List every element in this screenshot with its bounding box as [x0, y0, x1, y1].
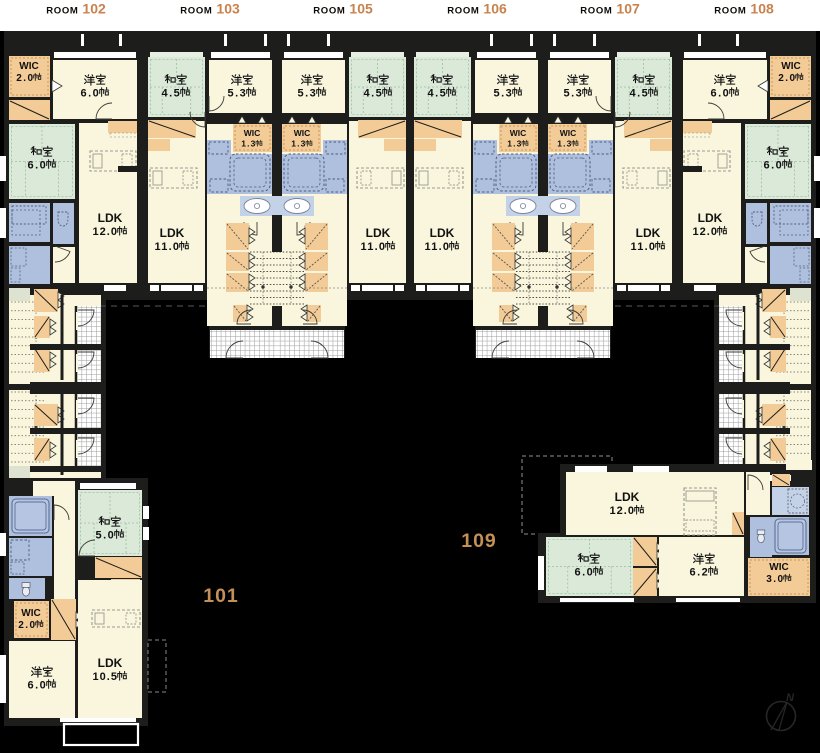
svg-text:WIC: WIC — [244, 128, 261, 138]
svg-text:WIC: WIC — [21, 608, 40, 619]
svg-text:1.3: 1.3 — [557, 139, 571, 149]
svg-text:5.0: 5.0 — [96, 530, 114, 542]
svg-text:109: 109 — [461, 530, 497, 552]
svg-text:12.0: 12.0 — [693, 226, 718, 238]
svg-text:1.3: 1.3 — [291, 139, 305, 149]
svg-text:5.3: 5.3 — [228, 88, 246, 100]
svg-text:2.0: 2.0 — [778, 73, 795, 84]
svg-text:5.3: 5.3 — [564, 88, 582, 100]
svg-text:6.0: 6.0 — [764, 160, 782, 172]
svg-text:1.3: 1.3 — [241, 139, 255, 149]
svg-text:LDK: LDK — [698, 211, 723, 225]
svg-text:11.0: 11.0 — [155, 241, 180, 253]
svg-text:12.0: 12.0 — [93, 226, 118, 238]
svg-text:WIC: WIC — [769, 562, 788, 573]
svg-text:6.0: 6.0 — [28, 160, 46, 172]
svg-text:101: 101 — [203, 585, 239, 607]
svg-text:N: N — [786, 692, 795, 704]
svg-text:6.0: 6.0 — [81, 88, 99, 100]
svg-text:2.0: 2.0 — [18, 620, 35, 631]
svg-text:LDK: LDK — [430, 226, 455, 240]
svg-text:11.0: 11.0 — [425, 241, 450, 253]
svg-text:5.3: 5.3 — [298, 88, 316, 100]
svg-text:4.5: 4.5 — [630, 88, 648, 100]
svg-text:LDK: LDK — [636, 226, 661, 240]
svg-text:3.0: 3.0 — [766, 574, 783, 585]
svg-text:WIC: WIC — [19, 61, 38, 72]
svg-text:11.0: 11.0 — [631, 241, 656, 253]
svg-text:6.0: 6.0 — [28, 680, 46, 692]
svg-text:4.5: 4.5 — [162, 88, 180, 100]
svg-text:WIC: WIC — [781, 61, 800, 72]
svg-text:LDK: LDK — [366, 226, 391, 240]
svg-text:LDK: LDK — [160, 226, 185, 240]
svg-text:LDK: LDK — [98, 211, 123, 225]
svg-text:6.0: 6.0 — [711, 88, 729, 100]
svg-text:WIC: WIC — [560, 128, 577, 138]
svg-text:2.0: 2.0 — [16, 73, 33, 84]
svg-text:WIC: WIC — [294, 128, 311, 138]
svg-text:1.3: 1.3 — [507, 139, 521, 149]
svg-text:LDK: LDK — [98, 656, 123, 670]
svg-text:12.0: 12.0 — [610, 505, 635, 517]
svg-text:4.5: 4.5 — [428, 88, 446, 100]
svg-text:4.5: 4.5 — [364, 88, 382, 100]
svg-text:11.0: 11.0 — [361, 241, 386, 253]
svg-text:WIC: WIC — [510, 128, 527, 138]
svg-text:LDK: LDK — [615, 490, 640, 504]
svg-text:6.0: 6.0 — [575, 567, 593, 579]
svg-text:5.3: 5.3 — [494, 88, 512, 100]
svg-text:6.2: 6.2 — [690, 567, 708, 579]
svg-text:10.5: 10.5 — [93, 671, 118, 683]
